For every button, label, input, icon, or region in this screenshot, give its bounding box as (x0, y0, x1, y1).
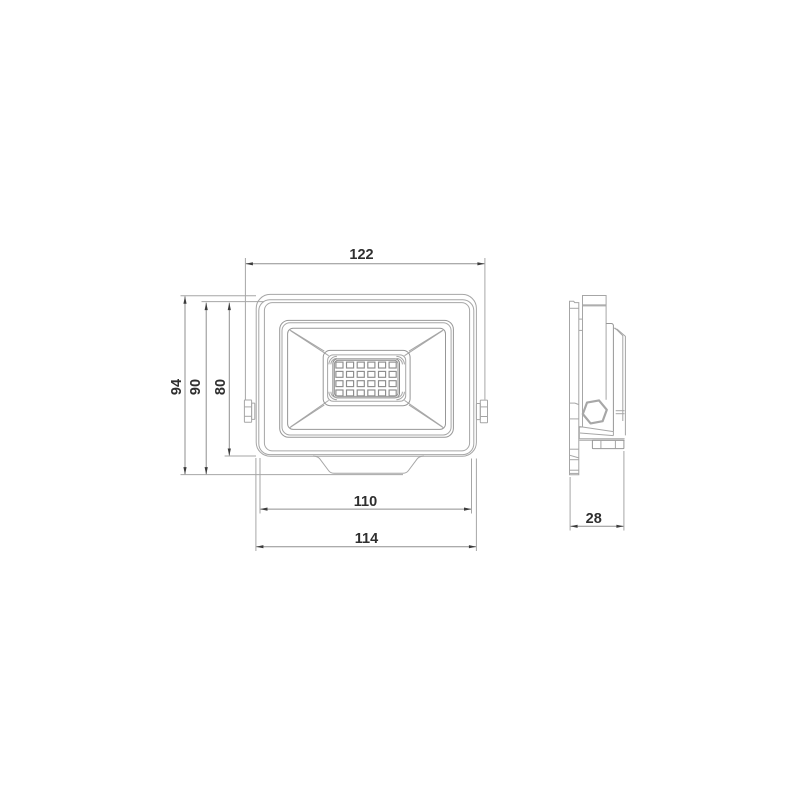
svg-text:80: 80 (213, 379, 229, 395)
svg-text:114: 114 (355, 531, 378, 547)
svg-text:110: 110 (354, 494, 377, 510)
svg-text:122: 122 (349, 247, 373, 263)
svg-text:28: 28 (586, 511, 602, 527)
svg-text:90: 90 (188, 379, 204, 395)
svg-text:94: 94 (169, 379, 185, 395)
